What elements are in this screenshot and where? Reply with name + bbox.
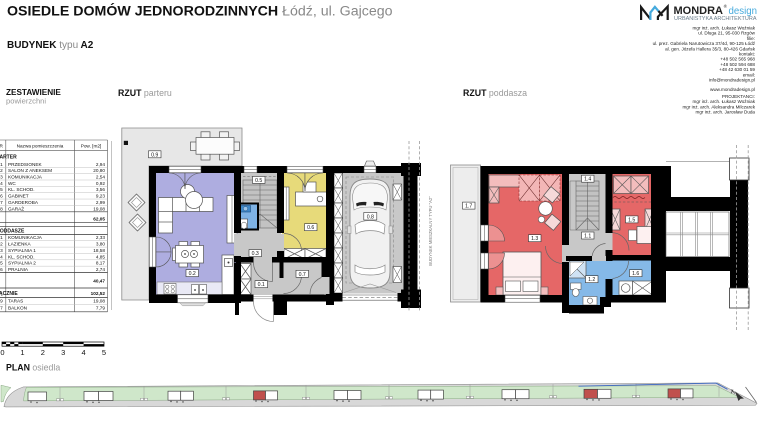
svg-text:2: 2 — [41, 348, 45, 357]
svg-text:OSIEDLE DOMÓW JEDNORODZINNYCH: OSIEDLE DOMÓW JEDNORODZINNYCH Łódź, ul. … — [7, 2, 393, 20]
svg-text:1.2: 1.2 — [0, 242, 3, 247]
svg-text:0.7: 0.7 — [299, 272, 306, 278]
svg-text:www.mondradesign.pl: www.mondradesign.pl — [710, 87, 755, 92]
svg-text:WC: WC — [8, 181, 16, 186]
svg-text:2,33: 2,33 — [96, 235, 106, 240]
svg-text:18,58: 18,58 — [93, 248, 105, 253]
svg-text:0.9: 0.9 — [151, 152, 158, 158]
svg-text:1.4: 1.4 — [584, 177, 591, 183]
svg-text:0.2: 0.2 — [189, 271, 196, 277]
svg-text:1.7: 1.7 — [0, 306, 3, 311]
svg-text:1.3: 1.3 — [0, 248, 3, 253]
svg-text:Pow. [m2]: Pow. [m2] — [81, 143, 102, 148]
svg-text:1.3: 1.3 — [531, 236, 538, 242]
svg-text:ŁĄCZNIE: ŁĄCZNIE — [0, 291, 18, 297]
svg-text:KOMUNIKACJA: KOMUNIKACJA — [8, 175, 43, 180]
svg-text:URBANISTYKA ARCHITEKTURA: URBANISTYKA ARCHITEKTURA — [674, 16, 757, 22]
svg-text:1.4: 1.4 — [0, 254, 3, 259]
svg-text:1.7: 1.7 — [465, 204, 472, 210]
svg-text:62,05: 62,05 — [93, 217, 105, 222]
svg-text:PARTER: PARTER — [0, 155, 17, 161]
svg-text:0.6: 0.6 — [0, 194, 3, 199]
svg-text:2,94: 2,94 — [96, 162, 106, 167]
svg-text:1.5: 1.5 — [628, 217, 635, 223]
svg-text:0.8: 0.8 — [367, 214, 374, 220]
svg-text:BALKON: BALKON — [8, 306, 27, 311]
svg-text:Nazwa pomieszczenia: Nazwa pomieszczenia — [17, 143, 64, 148]
svg-text:2,74: 2,74 — [96, 267, 106, 272]
svg-text:1.6: 1.6 — [632, 271, 639, 277]
svg-text:19,08: 19,08 — [93, 299, 105, 304]
svg-text:powierzchni: powierzchni — [6, 97, 46, 106]
svg-text:0.5: 0.5 — [255, 178, 262, 184]
svg-text:KOMUNIKACJA: KOMUNIKACJA — [8, 235, 43, 240]
svg-text:19,08: 19,08 — [93, 206, 105, 211]
svg-text:1.1: 1.1 — [0, 235, 3, 240]
svg-text:SYPIALNIA 1: SYPIALNIA 1 — [8, 248, 36, 253]
svg-text:PODDASZE: PODDASZE — [0, 229, 25, 235]
svg-text:ŁAZIENKA: ŁAZIENKA — [8, 242, 32, 247]
svg-text:2,99: 2,99 — [96, 200, 106, 205]
svg-text:102,52: 102,52 — [91, 291, 106, 296]
svg-text:BUDYNEK MIESZKALNY TYPU "A2": BUDYNEK MIESZKALNY TYPU "A2" — [428, 196, 433, 266]
svg-text:1: 1 — [20, 348, 24, 357]
svg-text:BUDYNEK typu A2: BUDYNEK typu A2 — [7, 40, 94, 51]
svg-text:0,92: 0,92 — [96, 181, 106, 186]
svg-text:GABINET: GABINET — [8, 194, 29, 199]
svg-text:0: 0 — [0, 348, 4, 357]
svg-text:0.7: 0.7 — [0, 200, 3, 205]
svg-text:PRZEDSIONEK: PRZEDSIONEK — [8, 162, 42, 167]
svg-text:4,85: 4,85 — [96, 254, 106, 259]
svg-text:SYPIALNIA 2: SYPIALNIA 2 — [8, 261, 36, 266]
svg-text:0.3: 0.3 — [252, 251, 259, 257]
svg-text:3: 3 — [61, 348, 65, 357]
svg-text:0.3: 0.3 — [0, 175, 3, 180]
svg-text:RZUT parteru: RZUT parteru — [118, 88, 172, 98]
svg-text:0.5: 0.5 — [0, 187, 3, 192]
svg-text:3,80: 3,80 — [96, 242, 106, 247]
svg-text:RZUT poddasza: RZUT poddasza — [463, 88, 527, 98]
svg-text:SALON Z ANEKSEM: SALON Z ANEKSEM — [8, 168, 52, 173]
svg-text:0.1: 0.1 — [258, 282, 265, 288]
svg-text:TARAS: TARAS — [8, 299, 23, 304]
svg-text:0.1: 0.1 — [0, 162, 3, 167]
svg-text:4: 4 — [82, 348, 86, 357]
svg-text:9,23: 9,23 — [96, 194, 106, 199]
svg-text:PLAN osiedla: PLAN osiedla — [6, 363, 60, 373]
svg-text:1.5: 1.5 — [0, 261, 3, 266]
svg-text:5: 5 — [102, 348, 106, 357]
svg-text:1.1: 1.1 — [584, 234, 591, 240]
svg-text:0.9: 0.9 — [0, 299, 3, 304]
svg-text:0.4: 0.4 — [0, 181, 3, 186]
svg-text:mgr inż. arch. Jarosław Duda: mgr inż. arch. Jarosław Duda — [696, 110, 756, 115]
svg-text:0.6: 0.6 — [307, 225, 314, 231]
svg-text:0.8: 0.8 — [0, 206, 3, 211]
svg-text:7,79: 7,79 — [96, 306, 106, 311]
svg-text:PRALNIA: PRALNIA — [8, 267, 29, 272]
svg-text:1.2: 1.2 — [588, 277, 595, 283]
svg-text:KL. SCHOD.: KL. SCHOD. — [8, 187, 35, 192]
svg-text:GARAŻ: GARAŻ — [8, 205, 24, 211]
svg-text:8,17: 8,17 — [96, 261, 106, 266]
svg-text:2,54: 2,54 — [96, 175, 106, 180]
svg-text:info@mondradesign.pl: info@mondradesign.pl — [709, 78, 755, 83]
svg-text:20,80: 20,80 — [93, 168, 105, 173]
svg-text:GARDEROBA: GARDEROBA — [8, 200, 39, 205]
svg-text:1.6: 1.6 — [0, 267, 3, 272]
svg-text:KL. SCHOD.: KL. SCHOD. — [8, 254, 35, 259]
svg-text:40,47: 40,47 — [93, 279, 105, 284]
svg-text:0.2: 0.2 — [0, 168, 3, 173]
svg-text:3,56: 3,56 — [96, 187, 106, 192]
